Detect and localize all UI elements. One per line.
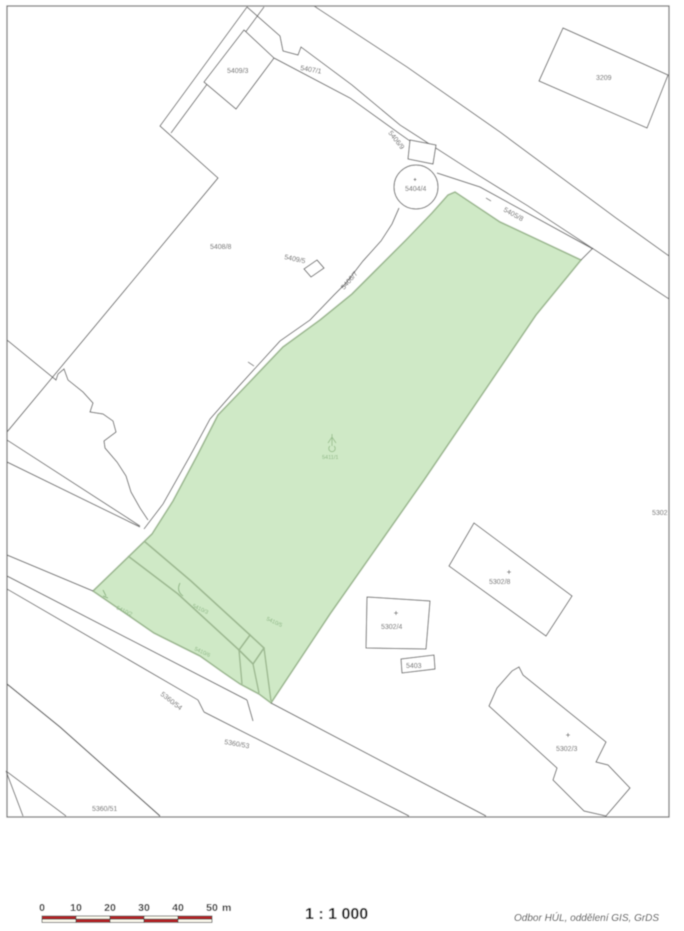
svg-text:20: 20 (104, 902, 116, 914)
svg-text:5302: 5302 (652, 510, 668, 517)
svg-text:5411/1: 5411/1 (322, 455, 338, 461)
svg-text:1 : 1 000: 1 : 1 000 (305, 906, 368, 923)
svg-text:5302/8: 5302/8 (489, 579, 511, 586)
svg-text:Odbor HÚL, oddělení GIS, GrDS: Odbor HÚL, oddělení GIS, GrDS (514, 911, 659, 924)
svg-text:m: m (222, 902, 231, 914)
svg-text:0: 0 (39, 902, 45, 914)
svg-text:5360/51: 5360/51 (92, 806, 117, 813)
svg-text:5302/4: 5302/4 (381, 624, 403, 631)
svg-text:5409/3: 5409/3 (227, 68, 249, 75)
svg-text:5404/4: 5404/4 (405, 186, 427, 193)
svg-text:50: 50 (206, 902, 218, 914)
svg-text:40: 40 (172, 902, 184, 914)
svg-text:10: 10 (70, 902, 82, 914)
svg-text:30: 30 (138, 902, 150, 914)
svg-text:3209: 3209 (596, 75, 612, 82)
svg-text:5408/8: 5408/8 (210, 244, 232, 251)
svg-text:5302/3: 5302/3 (556, 746, 578, 753)
svg-text:5403: 5403 (406, 663, 422, 670)
